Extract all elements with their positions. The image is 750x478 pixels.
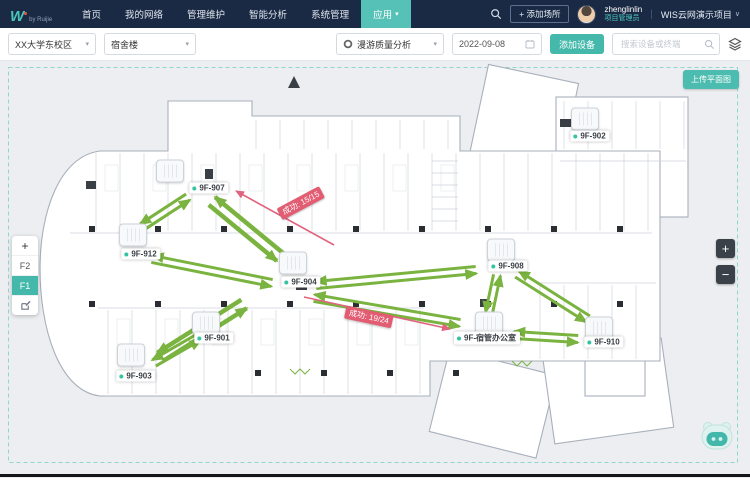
zoom-in-button[interactable]: +	[716, 239, 735, 258]
topbar-menu-item-3[interactable]: 智能分析	[237, 0, 299, 28]
ap-device-icon[interactable]	[192, 312, 220, 335]
date-value: 2022-09-08	[459, 39, 505, 49]
ap-label[interactable]: 9F-910	[584, 337, 623, 348]
analysis-select-value: 漫游质量分析	[357, 38, 411, 51]
calendar-icon	[525, 39, 535, 49]
floor-button-f1[interactable]: F1	[12, 276, 38, 296]
edit-floorplan-button[interactable]	[12, 296, 38, 315]
ap-device-icon[interactable]	[117, 344, 145, 367]
search-icon[interactable]	[704, 39, 715, 50]
ap-status-dot	[491, 264, 495, 268]
ap-label[interactable]: 9F-904	[281, 277, 320, 288]
topbar: W by Ruijie 首页我的网络管理维护智能分析系统管理应用▾ + 添加场所…	[0, 0, 750, 28]
user-role: 项目管理员	[604, 15, 642, 23]
user-info[interactable]: zhenglinlin 项目管理员	[604, 5, 642, 22]
ap-name: 9F-907	[199, 184, 224, 193]
add-place-button[interactable]: + 添加场所	[510, 5, 569, 23]
ap-device-icon[interactable]	[279, 252, 307, 275]
brand-logo[interactable]: W by Ruijie	[0, 0, 70, 28]
chevron-down-icon: ▾	[433, 40, 437, 48]
ap-label[interactable]: 9F-宿管办公室	[454, 332, 520, 345]
main-nav: 首页我的网络管理维护智能分析系统管理应用▾	[70, 0, 411, 28]
topbar-menu-item-4[interactable]: 系统管理	[299, 0, 361, 28]
filter-toolbar: XX大学东校区 ▾ 宿舍楼 ▾ 漫游质量分析 ▾ 2022-09-08	[0, 28, 750, 61]
menu-item-label: 智能分析	[249, 7, 287, 21]
ap-name: 9F-910	[594, 338, 619, 347]
chevron-down-icon: ▾	[395, 10, 399, 18]
assistant-mascot-icon[interactable]	[698, 419, 736, 455]
ap-label[interactable]: 9F-912	[121, 249, 160, 260]
floor-button-f2[interactable]: F2	[12, 256, 38, 276]
app-window: W by Ruijie 首页我的网络管理维护智能分析系统管理应用▾ + 添加场所…	[0, 0, 750, 477]
ap-name: 9F-宿管办公室	[464, 333, 516, 344]
logo-mark: W	[10, 9, 23, 24]
ap-status-dot	[192, 186, 196, 190]
topbar-menu-item-2[interactable]: 管理维护	[175, 0, 237, 28]
ap-name: 9F-903	[126, 372, 151, 381]
toolbar-right: 漫游质量分析 ▾ 2022-09-08 添加设备	[336, 33, 742, 55]
ap-status-dot	[284, 280, 288, 284]
analysis-mode-select[interactable]: 漫游质量分析 ▾	[336, 33, 444, 55]
device-search	[612, 33, 720, 55]
zoom-out-button[interactable]: −	[716, 265, 735, 284]
date-picker[interactable]: 2022-09-08	[452, 33, 542, 55]
ap-status-dot	[457, 336, 461, 340]
avatar[interactable]	[577, 5, 596, 24]
chevron-down-icon: ∨	[735, 10, 740, 18]
topbar-menu-item-1[interactable]: 我的网络	[113, 0, 175, 28]
ap-device-icon[interactable]	[156, 160, 184, 183]
edit-icon	[20, 300, 31, 311]
compass-icon	[288, 76, 300, 88]
building-select-value: 宿舍楼	[111, 38, 138, 51]
add-device-button[interactable]: 添加设备	[550, 34, 604, 54]
ap-label[interactable]: 9F-903	[116, 371, 155, 382]
ap-label[interactable]: 9F-907	[189, 183, 228, 194]
chevron-down-icon: ▾	[85, 40, 89, 48]
device-search-input[interactable]	[619, 38, 704, 50]
project-switcher[interactable]: WIS云网演示项目 ∨	[661, 8, 740, 21]
project-name: WIS云网演示项目	[661, 8, 732, 21]
ap-label[interactable]: 9F-901	[194, 333, 233, 344]
ap-device-icon[interactable]	[571, 108, 599, 131]
menu-item-label: 首页	[82, 7, 101, 21]
search-icon[interactable]	[490, 8, 502, 20]
user-name: zhenglinlin	[604, 5, 642, 14]
add-floor-button[interactable]: +	[12, 236, 38, 256]
ap-device-icon[interactable]	[487, 239, 515, 262]
ap-name: 9F-912	[131, 250, 156, 259]
ap-name: 9F-908	[498, 262, 523, 271]
floor-panel: + F2 F1	[12, 236, 38, 315]
menu-item-label: 应用	[373, 7, 392, 21]
ap-label[interactable]: 9F-902	[570, 131, 609, 142]
menu-item-label: 我的网络	[125, 7, 163, 21]
roaming-analysis-icon	[343, 39, 353, 49]
site-select[interactable]: XX大学东校区 ▾	[8, 33, 96, 55]
logo-dot	[24, 12, 27, 15]
site-select-value: XX大学东校区	[15, 38, 72, 51]
ap-status-dot	[119, 374, 123, 378]
ap-name: 9F-901	[204, 334, 229, 343]
menu-item-label: 管理维护	[187, 7, 225, 21]
floorplan	[0, 61, 750, 478]
ap-status-dot	[197, 336, 201, 340]
topbar-right: + 添加场所 zhenglinlin 项目管理员 | WIS云网演示项目 ∨	[490, 0, 750, 28]
topbar-divider: |	[650, 9, 653, 20]
upload-floorplan-button[interactable]: 上传平面图	[683, 70, 739, 89]
floorplan-canvas[interactable]: 上传平面图 + F2 F1 + − 9F-9079F-9129F-9049F-9…	[0, 61, 750, 478]
building-select[interactable]: 宿舍楼 ▾	[104, 33, 196, 55]
topbar-menu-item-0[interactable]: 首页	[70, 0, 113, 28]
layers-icon[interactable]	[728, 37, 742, 51]
logo-byline: by Ruijie	[29, 17, 52, 23]
ap-status-dot	[587, 340, 591, 344]
ap-status-dot	[573, 134, 577, 138]
menu-item-label: 系统管理	[311, 7, 349, 21]
ap-label[interactable]: 9F-908	[488, 261, 527, 272]
ap-name: 9F-904	[291, 278, 316, 287]
topbar-menu-item-5[interactable]: 应用▾	[361, 0, 411, 28]
ap-device-icon[interactable]	[119, 224, 147, 247]
chevron-down-icon: ▾	[185, 40, 189, 48]
ap-name: 9F-902	[580, 132, 605, 141]
ap-status-dot	[124, 252, 128, 256]
